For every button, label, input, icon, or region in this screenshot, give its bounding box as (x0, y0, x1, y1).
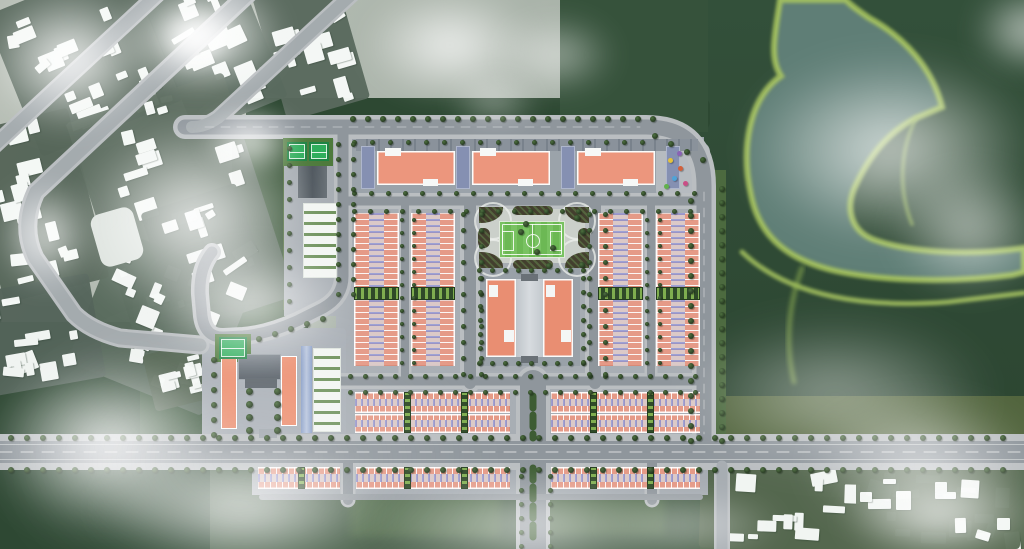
street-tree (624, 209, 629, 214)
street-tree (645, 309, 649, 313)
street-tree (380, 116, 386, 122)
street-tree (622, 140, 627, 145)
street-tree (719, 256, 725, 262)
apartment-block (472, 151, 550, 185)
playground-equipment (677, 151, 682, 156)
street-tree (658, 322, 662, 326)
street-tree (640, 209, 645, 214)
street-tree (400, 244, 404, 248)
shophouse-skylight-strip (671, 213, 686, 287)
street-tree (400, 231, 404, 235)
street-tree (590, 116, 596, 122)
street-tree (645, 296, 649, 300)
street-tree (603, 276, 608, 281)
street-tree (514, 140, 519, 145)
street-tree (688, 258, 694, 264)
street-tree (581, 276, 586, 281)
shophouse-skylight-strip (613, 213, 628, 287)
street-tree (587, 308, 592, 313)
playground-equipment (664, 184, 669, 189)
street-tree (369, 191, 374, 196)
street-tree (624, 191, 629, 196)
street-tree (544, 209, 549, 214)
street-tree (516, 268, 521, 273)
street-tree (568, 268, 573, 273)
street-tree (576, 209, 581, 214)
street-tree (388, 140, 393, 145)
street-tree (668, 141, 674, 147)
street-tree (479, 244, 484, 249)
street-tree (719, 298, 725, 304)
street-tree (587, 228, 592, 233)
street-tree (688, 213, 694, 219)
apartment-roof-unit (585, 148, 601, 156)
street-tree (603, 228, 608, 233)
shophouse-skylight-strip (426, 213, 441, 287)
apartment-link-slab (361, 146, 375, 189)
apartment-link-slab (456, 146, 470, 189)
street-tree (608, 209, 613, 214)
street-tree (587, 372, 592, 377)
street-tree (645, 257, 649, 261)
street-tree (581, 332, 586, 337)
street-tree (688, 273, 694, 279)
street-tree (442, 140, 447, 145)
street-tree (635, 116, 641, 122)
street-tree (603, 340, 608, 345)
cloud (180, 90, 320, 190)
street-tree (370, 140, 375, 145)
street-tree (477, 268, 482, 273)
street-tree (454, 191, 459, 196)
playground-equipment (668, 158, 673, 163)
street-tree (587, 340, 592, 345)
apartment-link-slab (561, 146, 575, 189)
clubhouse-roof-unit (561, 330, 571, 342)
street-tree (587, 260, 592, 265)
street-tree (719, 270, 725, 276)
street-tree (603, 260, 608, 265)
street-tree (587, 292, 592, 297)
street-tree (368, 209, 373, 214)
street-tree (688, 228, 694, 234)
pitch-center-circle (526, 234, 540, 248)
street-tree (350, 116, 356, 122)
street-tree (652, 133, 658, 139)
street-tree (658, 244, 662, 248)
street-tree (650, 116, 656, 122)
street-tree (658, 191, 663, 196)
street-tree (719, 228, 725, 234)
street-tree (479, 212, 484, 217)
street-tree (437, 191, 442, 196)
street-tree (400, 218, 404, 222)
street-tree (587, 212, 592, 217)
street-tree (471, 191, 476, 196)
street-tree (573, 191, 578, 196)
apartment-roof-unit (518, 179, 533, 186)
clubhouse-stub-top (521, 274, 538, 281)
street-tree (607, 191, 612, 196)
street-tree (641, 191, 646, 196)
street-tree (496, 140, 501, 145)
street-tree (403, 191, 408, 196)
street-tree (461, 260, 466, 265)
street-tree (539, 191, 544, 196)
street-tree (490, 268, 495, 273)
street-tree (461, 244, 466, 249)
street-tree (603, 212, 608, 217)
street-tree (688, 198, 694, 204)
street-tree (432, 209, 437, 214)
street-tree (645, 283, 649, 287)
street-tree (688, 288, 694, 294)
street-tree (496, 209, 501, 214)
street-tree (568, 361, 573, 366)
street-tree (542, 268, 547, 273)
street-tree (688, 243, 694, 249)
street-tree (478, 290, 483, 295)
street-tree (658, 231, 662, 235)
football-pitch (499, 221, 565, 258)
street-tree (603, 356, 608, 361)
street-tree (600, 435, 606, 441)
street-tree (412, 218, 416, 222)
street-tree (587, 324, 592, 329)
street-tree (351, 142, 356, 147)
street-tree (400, 257, 404, 261)
street-tree (336, 142, 341, 147)
street-tree (692, 191, 697, 196)
park-tree (546, 263, 552, 269)
masterplan-aerial-render (0, 0, 1024, 549)
clubhouse-roof-unit (489, 285, 498, 297)
street-tree (620, 116, 626, 122)
street-tree (605, 116, 611, 122)
shophouse-skylight-strip (613, 300, 628, 366)
street-tree (573, 374, 578, 379)
street-tree (412, 231, 416, 235)
street-tree (603, 292, 608, 297)
street-tree (645, 218, 649, 222)
street-tree (575, 116, 581, 122)
street-tree (529, 268, 534, 273)
cloud (430, 60, 560, 140)
street-tree (587, 356, 592, 361)
street-tree (603, 372, 608, 377)
street-tree (555, 268, 560, 273)
clubhouse-roof-unit (546, 285, 555, 297)
street-tree (645, 270, 649, 274)
street-tree (603, 244, 608, 249)
street-tree (420, 191, 425, 196)
street-tree (581, 318, 586, 323)
street-tree (386, 191, 391, 196)
street-tree (412, 244, 416, 248)
street-tree (640, 140, 645, 145)
playground-equipment (683, 181, 688, 186)
street-tree (365, 116, 371, 122)
street-tree (406, 140, 411, 145)
street-tree (550, 140, 555, 145)
street-tree (461, 276, 466, 281)
street-tree (587, 276, 592, 281)
street-tree (645, 335, 649, 339)
street-tree (645, 244, 649, 248)
street-tree (460, 140, 465, 145)
street-tree (581, 268, 586, 273)
street-tree (592, 209, 597, 214)
street-tree (581, 360, 586, 365)
street-tree (395, 116, 401, 122)
street-tree (675, 191, 680, 196)
street-tree (478, 276, 483, 281)
street-tree (603, 390, 608, 395)
street-tree (512, 209, 517, 214)
street-tree (479, 228, 484, 233)
street-tree (461, 212, 466, 217)
street-tree (416, 209, 421, 214)
street-tree (478, 140, 483, 145)
street-tree (604, 140, 609, 145)
street-tree (672, 209, 677, 214)
street-tree (587, 244, 592, 249)
apartment-roof-unit (385, 148, 401, 156)
street-tree (590, 191, 595, 196)
street-tree (479, 260, 484, 265)
street-tree (503, 268, 508, 273)
street-tree (448, 209, 453, 214)
park-tree (579, 262, 585, 268)
street-tree (522, 191, 527, 196)
street-tree (658, 257, 662, 261)
street-tree (658, 218, 662, 222)
playground-equipment (678, 166, 683, 171)
street-tree (505, 191, 510, 196)
street-tree (488, 191, 493, 196)
apartment-roof-unit (423, 179, 438, 186)
street-tree (560, 209, 565, 214)
apartment-block (377, 151, 455, 185)
street-tree (568, 140, 573, 145)
street-tree (658, 309, 662, 313)
street-tree (588, 390, 593, 395)
street-tree (581, 346, 586, 351)
street-tree (603, 308, 608, 313)
apartment-roof-unit (623, 179, 638, 186)
pitch-box-left (502, 231, 514, 251)
street-tree (603, 324, 608, 329)
street-tree (658, 270, 662, 274)
playground-equipment (672, 176, 677, 181)
street-tree (645, 322, 649, 326)
street-tree (384, 209, 389, 214)
apartment-roof-unit (480, 148, 496, 156)
street-tree (556, 191, 561, 196)
street-tree (586, 140, 591, 145)
street-tree (658, 296, 662, 300)
street-tree (400, 209, 405, 214)
street-tree (656, 209, 661, 214)
street-tree (581, 304, 586, 309)
street-tree (616, 435, 622, 441)
street-tree (461, 228, 466, 233)
street-tree (532, 140, 537, 145)
street-tree (581, 290, 586, 295)
street-tree (719, 242, 725, 248)
street-tree (412, 257, 416, 261)
street-tree (560, 116, 566, 122)
street-tree (424, 140, 429, 145)
apartment-block (577, 151, 655, 185)
street-tree (528, 209, 533, 214)
street-tree (719, 284, 725, 290)
street-tree (688, 303, 694, 309)
street-tree (658, 283, 662, 287)
street-tree (351, 157, 356, 162)
street-tree (645, 231, 649, 235)
